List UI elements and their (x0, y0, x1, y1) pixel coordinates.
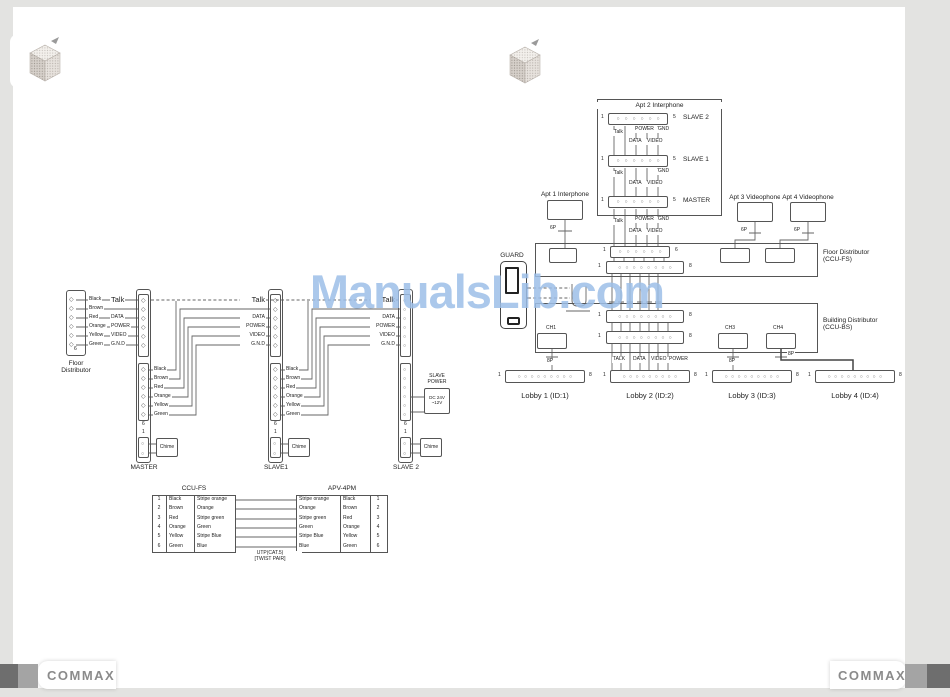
lobby1-strip (505, 370, 585, 383)
fd-apt1-port (549, 248, 577, 263)
pin-number: 6 (403, 422, 408, 428)
pin-number: 1 (600, 157, 605, 163)
guard-label: GUARD (494, 252, 530, 259)
table-cell: Stripe Blue (196, 534, 222, 540)
signal-label: DATA (628, 181, 643, 187)
pin-number: 8 (795, 373, 800, 379)
pin-number: 1 (602, 373, 607, 379)
signal-label: DATA (110, 315, 125, 321)
apt2-row-name: SLAVE 1 (682, 156, 720, 163)
commax-logo-right: COMMAX (838, 668, 906, 683)
signal-label: GND (657, 169, 670, 175)
bus-label: POWER (668, 357, 689, 363)
table-cell: 4 (153, 525, 165, 531)
table-cell: 1 (153, 497, 165, 503)
channel-label: CH1 (545, 326, 557, 332)
apt2-title: Apt 2 Interphone (597, 102, 722, 109)
table-cell: Green (168, 544, 184, 550)
table-cell: Green (342, 544, 358, 550)
footer-right-dark-block (927, 664, 950, 688)
apt2-row-name: MASTER (682, 197, 720, 204)
table-cell: 1 (372, 497, 384, 503)
wire-color-label: Orange (285, 394, 304, 400)
wire-color-label: Orange (153, 394, 172, 400)
table-cell: Brown (342, 506, 358, 512)
table-cell: Green (298, 525, 314, 531)
ch4-port (766, 333, 796, 349)
lobby-label: Lobby 2 (ID:2) (610, 392, 690, 400)
chime-box: Chime (156, 438, 178, 457)
table-cell: Stripe green (196, 516, 225, 522)
wire-color-label: Red (285, 385, 296, 391)
signal-label: POWER (370, 324, 396, 330)
apt1-label: Apt 1 Interphone (533, 191, 597, 198)
wire-color-label: Red (88, 315, 99, 321)
chime-box: Chime (288, 438, 310, 457)
table-divider (340, 495, 341, 553)
connector-6p-label: 6P (740, 228, 748, 234)
pin-number: 1 (141, 430, 146, 436)
table-left-header: CCU-FS (160, 485, 228, 492)
halftone-cube-icon (28, 44, 62, 82)
wire-color-label: Black (153, 367, 167, 373)
signal-label: VIDEO (240, 333, 266, 339)
wire-color-label: Orange (88, 324, 107, 330)
connector-6p-label: 6P (793, 228, 801, 234)
halftone-cube-icon (508, 46, 542, 84)
apt2-strip-slave2 (608, 113, 668, 125)
arrow-icon (50, 36, 60, 45)
fd-pin-column (69, 296, 74, 350)
connector-6p-label: 6P (549, 226, 557, 232)
table-cell: Black (168, 497, 182, 503)
table-cell: 3 (372, 516, 384, 522)
pin-number: 6 (674, 248, 679, 254)
pin-number: 1 (403, 430, 408, 436)
pin-number: 1 (597, 334, 602, 340)
pin-number: 5 (672, 157, 677, 163)
pin-number: 1 (807, 373, 812, 379)
pin-number: 1 (273, 430, 278, 436)
signal-label: Talk (110, 296, 125, 304)
table-cell: Stripe orange (196, 497, 228, 503)
unit-name: SLAVE1 (248, 464, 304, 471)
wire-color-label: Red (153, 385, 164, 391)
lobby2-strip (610, 370, 690, 383)
bus-label: DATA (632, 357, 647, 363)
master-mid-pins (141, 366, 146, 420)
pin-number: 8 (688, 334, 693, 340)
wire-color-label: Black (88, 297, 102, 303)
chime-box: Chime (420, 438, 442, 457)
signal-label: G.N.D (370, 342, 396, 348)
table-cell: Black (342, 497, 356, 503)
apt2-strip-slave1 (608, 155, 668, 167)
table-cell: 6 (372, 544, 384, 550)
pin-number: 6 (141, 422, 146, 428)
table-cell: Orange (298, 506, 317, 512)
fd-strip-6 (610, 246, 670, 258)
footer-right-gray-block (905, 664, 927, 688)
signal-label: POWER (240, 324, 266, 330)
lobby3-strip (712, 370, 792, 383)
signal-label: POWER (110, 324, 131, 330)
pin-number: 5 (672, 198, 677, 204)
table-cell: Stripe orange (298, 497, 330, 503)
table-cell: Orange (168, 525, 187, 531)
table-cell: Yellow (342, 534, 358, 540)
connector-8p-label: 8P (546, 359, 554, 365)
table-cell: Green (196, 525, 212, 531)
signal-label: GND (657, 217, 670, 223)
signal-label: Talk (613, 219, 624, 225)
footer-left-dark-block (0, 664, 18, 688)
lobby-label: Lobby 1 (ID:1) (505, 392, 585, 400)
wire-color-label: Black (285, 367, 299, 373)
signal-label: G.N.D (110, 342, 126, 348)
signal-label: G.N.D (240, 342, 266, 348)
table-cell: Blue (196, 544, 208, 550)
unit-name: MASTER (116, 464, 172, 471)
unit-name: SLAVE 2 (378, 464, 434, 471)
table-cell: Brown (168, 506, 184, 512)
wire-color-label: Brown (88, 306, 104, 312)
wire-color-label: Brown (285, 376, 301, 382)
slave2-mid-pins (403, 366, 406, 420)
pin-number: 1 (602, 248, 607, 254)
bd-strip-bottom (606, 331, 684, 344)
table-cell: 6 (153, 544, 165, 550)
pin-number: 8 (693, 373, 698, 379)
pin-number: 1 (600, 198, 605, 204)
table-cell: Stripe Blue (298, 534, 324, 540)
master-top-pins (141, 297, 146, 351)
wire-color-label: Yellow (285, 403, 301, 409)
apt4-label: Apt 4 Videophone (780, 194, 836, 201)
signal-label: GND (657, 127, 670, 133)
ch3-port (718, 333, 748, 349)
signal-label: Talk (613, 130, 624, 136)
pin-number: 1 (704, 373, 709, 379)
connector-8p-label: 8P (787, 352, 795, 358)
signal-label: POWER (634, 127, 655, 133)
table-cell: Stripe green (298, 516, 327, 522)
signal-label: POWER (634, 217, 655, 223)
apt4-box (790, 202, 826, 222)
apt1-box (547, 200, 583, 220)
slave-power-box: DC 24V ~12V (424, 388, 450, 414)
signal-label: DATA (628, 139, 643, 145)
bus-label: TALK (612, 357, 626, 363)
table-cell: Yellow (168, 534, 184, 540)
fd-apt3-port (720, 248, 750, 263)
signal-label: VIDEO (646, 229, 664, 235)
channel-label: CH3 (724, 326, 736, 332)
slave1-chime-pins (273, 440, 276, 459)
fd-label: Floor Distributor (48, 360, 104, 375)
channel-label: CH4 (772, 326, 784, 332)
slave-power-title: SLAVE POWER (422, 374, 452, 385)
commax-logo-left: COMMAX (47, 668, 115, 683)
apt3-label: Apt 3 Videophone (727, 194, 783, 201)
apt3-box (737, 202, 773, 222)
table-cell: 4 (372, 525, 384, 531)
signal-label: VIDEO (110, 333, 128, 339)
table-cell: 5 (372, 534, 384, 540)
table-divider (370, 495, 371, 553)
fd-pin-count: 6 (73, 347, 78, 353)
table-cell: Red (342, 516, 353, 522)
table-cell: 2 (372, 506, 384, 512)
wire-color-label: Brown (153, 376, 169, 382)
floor-distributor-label: Floor Distributor (CCU-FS) (822, 249, 870, 264)
wire-color-label: Yellow (88, 333, 104, 339)
lobby-label: Lobby 3 (ID:3) (712, 392, 792, 400)
slave2-chime-pins (403, 440, 406, 459)
pin-number: 1 (497, 373, 502, 379)
table-cell: Orange (342, 525, 361, 531)
table-divider (194, 495, 195, 553)
pin-number: 5 (672, 115, 677, 121)
lobby-label: Lobby 4 (ID:4) (815, 392, 895, 400)
signal-label: DATA (628, 229, 643, 235)
pin-number: 8 (898, 373, 903, 379)
signal-label: Talk (613, 171, 624, 177)
table-cell: 5 (153, 534, 165, 540)
wire-color-label: Green (153, 412, 169, 418)
signal-label: VIDEO (646, 139, 664, 145)
guard-handset-mic (507, 317, 520, 325)
scanned-manual-spread: { "watermark": "ManualsLib.com", "brand"… (0, 0, 950, 697)
table-right-header: APV-4PM (308, 485, 376, 492)
ch1-port (537, 333, 567, 349)
cable-note: UTP(CAT.5) [TWIST PAIR] (238, 551, 302, 562)
table-cell: Red (168, 516, 179, 522)
slave1-mid-pins (273, 366, 278, 420)
table-divider (166, 495, 167, 553)
manualslib-watermark: ManualsLib.com (252, 264, 722, 318)
apt2-strip-master (608, 196, 668, 208)
table-cell: Blue (298, 544, 310, 550)
table-cell: 2 (153, 506, 165, 512)
master-chime-pins (141, 440, 144, 459)
table-cell: Orange (196, 506, 215, 512)
footer-left-gray-block (18, 664, 38, 688)
wire-color-label: Yellow (153, 403, 169, 409)
table-cell: 3 (153, 516, 165, 522)
wire-color-label: Green (88, 342, 104, 348)
pin-number: 6 (273, 422, 278, 428)
fd-apt4-port (765, 248, 795, 263)
pin-number: 8 (588, 373, 593, 379)
apt2-row-name: SLAVE 2 (682, 114, 720, 121)
lobby4-strip (815, 370, 895, 383)
pin-number: 1 (600, 115, 605, 121)
bus-label: VIDEO (650, 357, 668, 363)
building-distributor-label: Building Distributor (CCU-BS) (822, 317, 879, 332)
signal-label: VIDEO (370, 333, 396, 339)
wire-color-label: Green (285, 412, 301, 418)
connector-8p-label: 8P (728, 359, 736, 365)
signal-label: VIDEO (646, 181, 664, 187)
arrow-icon (530, 38, 540, 47)
